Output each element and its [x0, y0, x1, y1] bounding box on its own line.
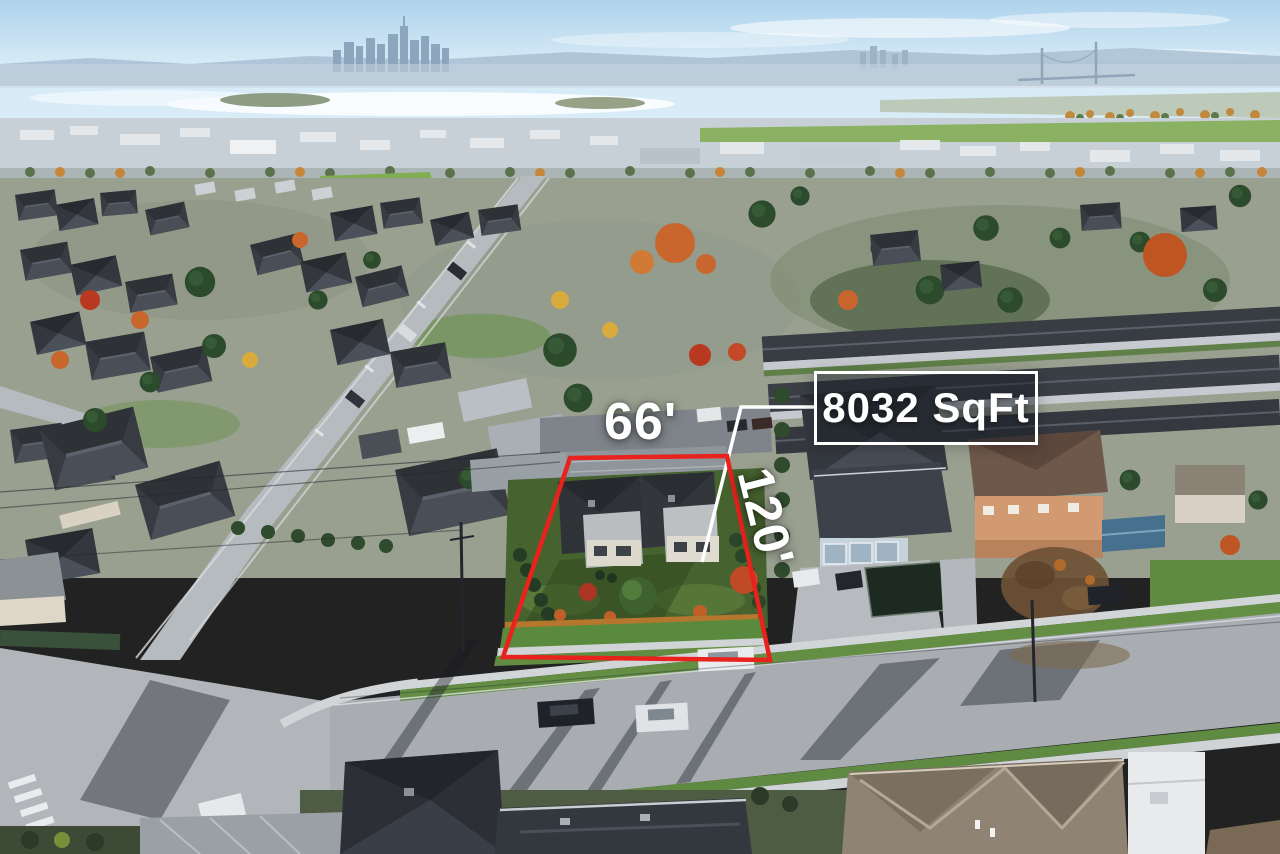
aerial-listing-photo: 66' 120' 8032 SqFt: [0, 0, 1280, 854]
lot-width-label: 66': [604, 392, 677, 452]
river: [0, 88, 1280, 122]
lot-area-label: 8032 SqFt: [822, 384, 1029, 432]
tan-house: [842, 758, 1128, 854]
parked-suv-right: [1087, 585, 1124, 605]
pyramid-roof-house: [340, 750, 505, 854]
bare-autumn-tree: [1001, 547, 1109, 623]
lot-area-badge: 8032 SqFt: [814, 371, 1038, 445]
white-flat-building: [1128, 752, 1205, 854]
